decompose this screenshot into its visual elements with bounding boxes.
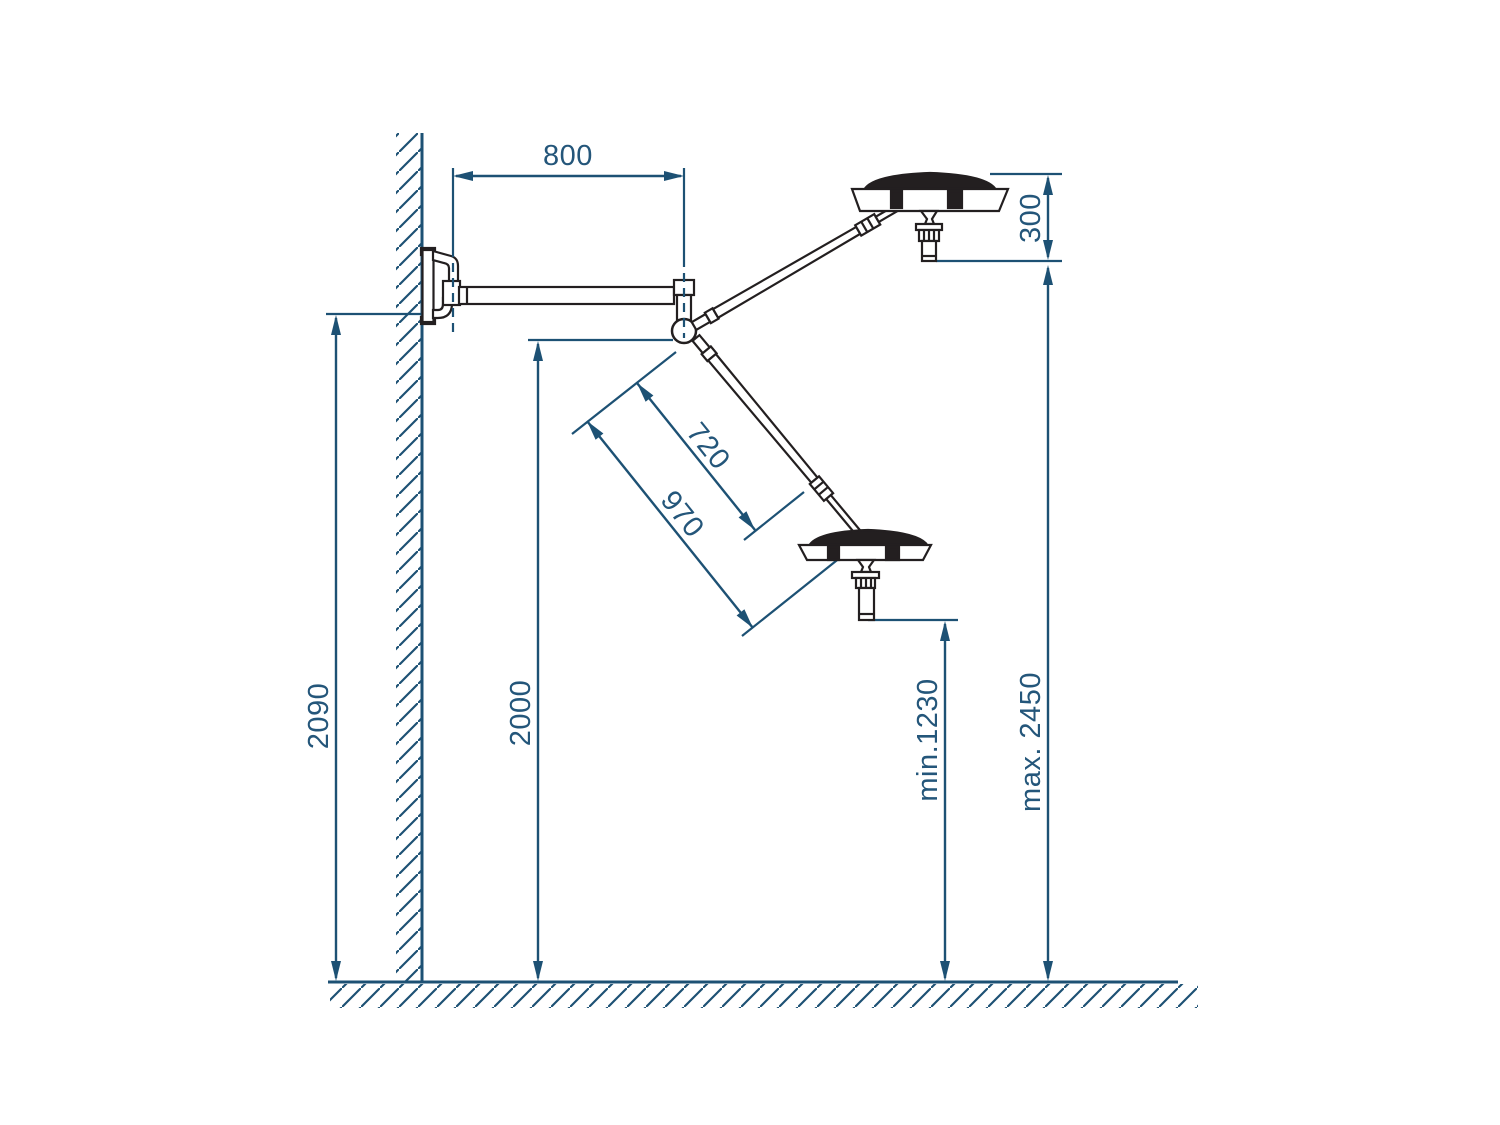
lower-head-gimbal: [858, 560, 874, 572]
dim-label-max2450: max. 2450: [1015, 672, 1047, 812]
dim-300: 300: [1015, 175, 1053, 260]
floor-hatching: [330, 984, 1198, 1008]
dim-800: 800: [453, 140, 684, 181]
dim-2090: 2090: [303, 315, 341, 981]
dim-2000: 2000: [505, 341, 543, 981]
dim-max-2450: max. 2450: [1015, 265, 1053, 981]
arrow-up: [1043, 175, 1053, 195]
arm-tube: [459, 287, 674, 304]
horizontal-support-arm: [459, 287, 674, 304]
arrow-down: [533, 961, 543, 981]
wall-hatching: [396, 133, 422, 982]
floor: [328, 982, 1198, 1008]
dim-label-2090: 2090: [303, 683, 335, 750]
lower-head-mount: [828, 547, 839, 560]
arrow-down: [940, 961, 950, 981]
dim-label-300: 300: [1015, 193, 1047, 243]
bracket-elbow: [443, 281, 460, 305]
upper-head-rim: [852, 189, 1008, 211]
upper-head-mount: [948, 191, 962, 208]
arrow-up: [940, 621, 950, 641]
upper-head-mount: [891, 191, 902, 208]
arrow-left: [453, 171, 473, 181]
arrow-right: [664, 171, 684, 181]
lower-head-mount: [886, 547, 899, 560]
upper-handle-tube: [922, 241, 936, 261]
dim-label-970: 970: [654, 485, 710, 544]
bracket-plate: [423, 250, 434, 322]
reference-lines: [326, 168, 1062, 636]
light-assembly: [421, 173, 1008, 620]
arrow-down: [1043, 961, 1053, 981]
arrow-up: [331, 315, 341, 335]
dimension-drawing: 800 300 2090 2000 min.1230: [0, 0, 1500, 1125]
technical-drawing-page: 800 300 2090 2000 min.1230: [0, 0, 1500, 1125]
arrow-down: [331, 961, 341, 981]
dim-label-800: 800: [543, 140, 593, 172]
dim-label-720: 720: [680, 417, 736, 476]
lower-head-rim: [799, 545, 931, 560]
dim-label-min1230: min.1230: [912, 678, 944, 801]
dim-label-2000: 2000: [505, 680, 537, 747]
lower-handle-tube: [859, 588, 874, 620]
ext-line-720-far: [744, 492, 804, 540]
upper-spring-arm: [691, 199, 906, 331]
upper-arm-tube: [713, 226, 861, 318]
upper-head-gimbal: [921, 211, 937, 224]
arrow-up: [1043, 265, 1053, 285]
wall: [396, 133, 422, 982]
dim-min-1230: min.1230: [912, 621, 950, 981]
wall-bracket: [421, 248, 460, 324]
arrow-up: [533, 341, 543, 361]
